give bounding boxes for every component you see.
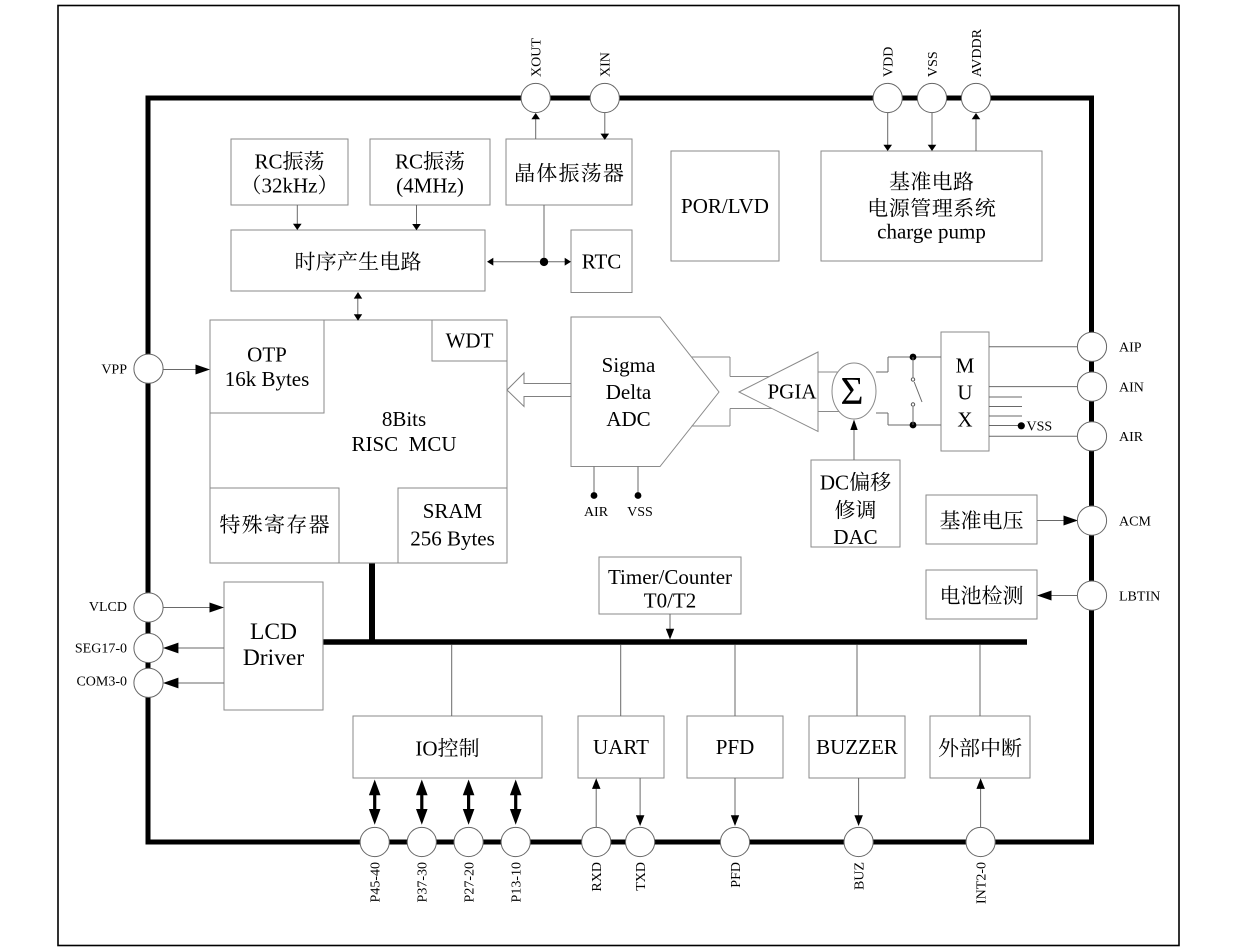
svg-text:Σ: Σ [841, 370, 864, 413]
svg-text:VSS: VSS [1027, 420, 1053, 435]
svg-text:RC: RC [255, 150, 283, 174]
svg-text:Timer/Counter: Timer/Counter [608, 565, 732, 589]
svg-text:P45-40: P45-40 [369, 862, 384, 902]
svg-text:BUZZER: BUZZER [816, 735, 898, 759]
svg-text:LBTIN: LBTIN [1119, 589, 1160, 604]
svg-text:IO: IO [415, 737, 437, 761]
svg-text:VPP: VPP [101, 363, 127, 378]
svg-text:WDT: WDT [446, 329, 494, 353]
svg-text:VSS: VSS [627, 505, 653, 520]
svg-text:8Bits: 8Bits [382, 407, 426, 431]
svg-text:DC: DC [820, 471, 849, 495]
svg-text:P27-20: P27-20 [463, 862, 478, 902]
svg-text:AIR: AIR [1119, 430, 1144, 445]
svg-text:OTP: OTP [247, 343, 287, 367]
svg-text:M: M [956, 354, 975, 378]
svg-text:VLCD: VLCD [89, 600, 127, 615]
svg-text:charge pump: charge pump [877, 220, 986, 244]
svg-text:Delta: Delta [606, 380, 652, 404]
svg-text:DAC: DAC [833, 525, 877, 549]
svg-text:X: X [957, 408, 972, 432]
svg-text:(4MHz): (4MHz) [396, 174, 464, 198]
svg-text:VDD: VDD [882, 47, 897, 77]
svg-text:AVDDR: AVDDR [970, 28, 985, 77]
svg-text:P37-30: P37-30 [416, 862, 431, 902]
svg-text:LCD: LCD [250, 619, 297, 645]
svg-text:AIR: AIR [584, 505, 609, 520]
svg-text:AIN: AIN [1119, 380, 1144, 395]
svg-text:256 Bytes: 256 Bytes [410, 527, 495, 551]
svg-text:XIN: XIN [599, 52, 614, 77]
svg-text:32kHz: 32kHz [262, 174, 318, 198]
svg-text:COM3-0: COM3-0 [76, 675, 127, 690]
svg-text:VSS: VSS [926, 51, 941, 77]
svg-text:UART: UART [593, 735, 649, 759]
svg-text:SEG17-0: SEG17-0 [75, 642, 127, 657]
svg-text:P13-10: P13-10 [510, 862, 525, 902]
svg-text:RC: RC [395, 150, 423, 174]
svg-text:ACM: ACM [1119, 514, 1151, 529]
svg-text:INT2-0: INT2-0 [975, 862, 990, 904]
svg-text:Sigma: Sigma [602, 353, 656, 377]
svg-text:RISC MCU: RISC MCU [351, 432, 456, 456]
svg-text:SRAM: SRAM [423, 499, 483, 523]
svg-text:TXD: TXD [634, 862, 649, 891]
svg-text:BUZ: BUZ [853, 862, 868, 890]
svg-text:PGIA: PGIA [767, 380, 817, 404]
svg-text:U: U [957, 381, 972, 405]
svg-text:T0/T2: T0/T2 [644, 589, 697, 613]
svg-text:ADC: ADC [606, 407, 650, 431]
svg-text:PFD: PFD [716, 735, 755, 759]
svg-text:RXD: RXD [590, 862, 605, 892]
svg-text:16k Bytes: 16k Bytes [225, 367, 310, 391]
svg-text:RTC: RTC [582, 250, 622, 274]
svg-text:PFD: PFD [729, 862, 744, 888]
svg-text:Driver: Driver [243, 645, 305, 671]
svg-text:AIP: AIP [1119, 341, 1142, 356]
svg-text:XOUT: XOUT [530, 38, 545, 77]
svg-text:POR/LVD: POR/LVD [681, 194, 769, 218]
